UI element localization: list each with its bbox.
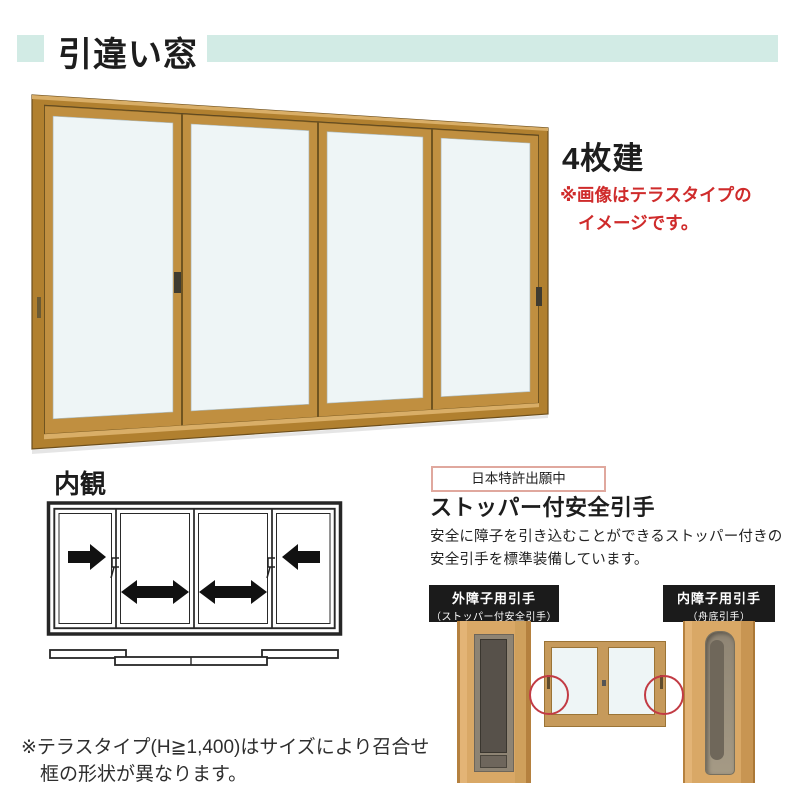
patent-badge: 日本特許出願中 (431, 466, 606, 492)
interior-view-title: 内観 (54, 464, 106, 501)
feature-description-line1: 安全に障子を引き込むことができるストッパー付きの (430, 526, 783, 549)
inner-handle-recess (705, 631, 735, 775)
image-note-line1: ※画像はテラスタイプの (560, 181, 752, 209)
panel-count-label: 4枚建 (562, 133, 644, 178)
feature-title: ストッパー付安全引手 (430, 490, 655, 522)
inner-handle-photo (683, 621, 755, 783)
main-window-illustration (0, 0, 600, 470)
outer-handle-recess (474, 634, 514, 772)
handle-label-outer: 外障子用引手 （ストッパー付安全引手） (429, 585, 559, 622)
handle-label-inner-line1: 内障子用引手 (663, 588, 775, 607)
highlight-circle-left (529, 675, 569, 715)
image-note: ※画像はテラスタイプの イメージです。 (560, 181, 752, 237)
highlight-circle-right (644, 675, 684, 715)
meeting-stile-lock (602, 680, 606, 686)
feature-description: 安全に障子を引き込むことができるストッパー付きの 安全引手を標準装備しています。 (430, 526, 783, 572)
footer-note: ※テラスタイプ(H≧1,400)はサイズにより召合せ 框の形状が異なります。 (21, 734, 429, 788)
plan-diagram (50, 650, 338, 665)
interior-diagram (46, 500, 344, 670)
product-sheet: 引違い窓 4枚建 ※画像はテラスタイプの イメージです。 内観 (0, 0, 800, 800)
image-note-line2: イメージです。 (560, 209, 752, 237)
handle-label-outer-line1: 外障子用引手 (429, 588, 559, 607)
footer-note-line2: 框の形状が異なります。 (21, 761, 429, 788)
outer-handle-photo (457, 621, 531, 783)
handle-label-inner: 内障子用引手 （舟底引手） (663, 585, 775, 622)
feature-description-line2: 安全引手を標準装備しています。 (430, 549, 783, 572)
footer-note-line1: ※テラスタイプ(H≧1,400)はサイズにより召合せ (21, 734, 429, 761)
